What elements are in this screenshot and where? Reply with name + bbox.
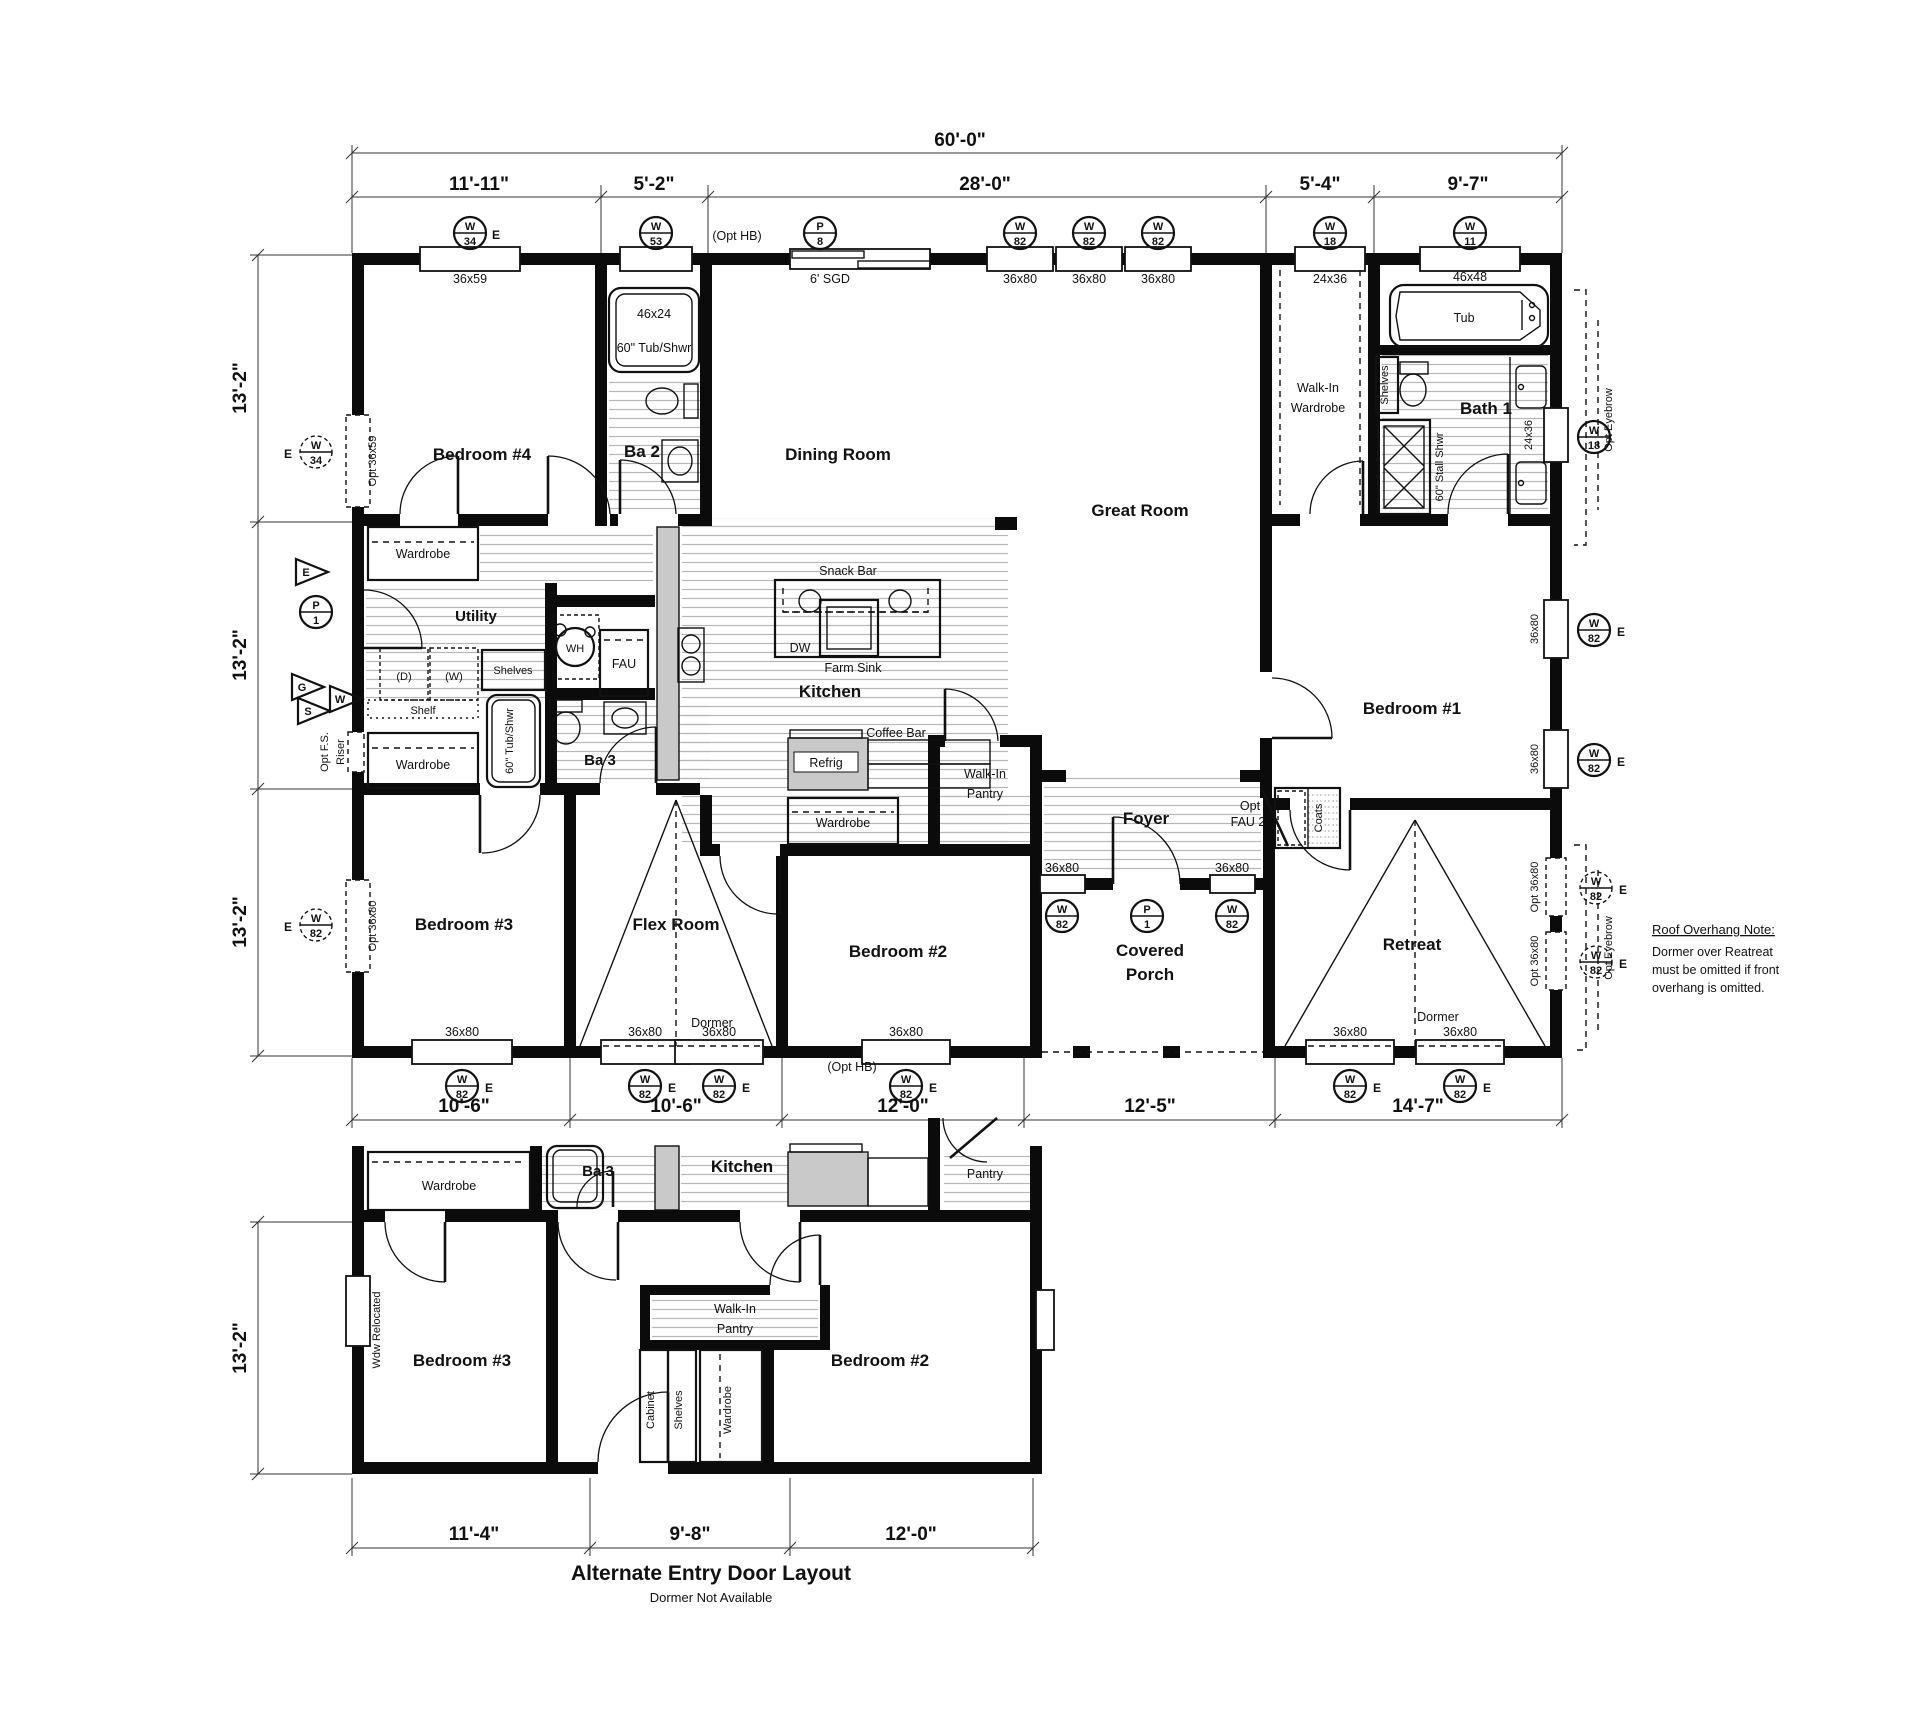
svg-text:W: W xyxy=(1589,425,1600,437)
label-farm-sink: Farm Sink xyxy=(825,661,883,675)
label-opt-hb-bottom: (Opt HB) xyxy=(827,1060,876,1074)
tag-w82-porch1: W82 xyxy=(1046,900,1078,932)
svg-text:E: E xyxy=(1617,625,1625,639)
label-walkin-pantry-2: Pantry xyxy=(967,787,1004,801)
label-washer: (W) xyxy=(445,671,463,683)
tag-p8: P8 xyxy=(804,217,836,249)
label-opt-fau2-2: FAU 2 xyxy=(1231,815,1266,829)
size-flex-w1: 36x80 xyxy=(628,1025,662,1039)
room-label-ba2: Ba 2 xyxy=(624,442,660,461)
size-gr-w3: 36x80 xyxy=(1141,272,1175,286)
room-label-bedroom3: Bedroom #3 xyxy=(415,915,513,934)
label-opt-hb-top: (Opt HB) xyxy=(712,229,761,243)
room-label-bedroom1: Bedroom #1 xyxy=(1363,699,1461,718)
svg-text:P: P xyxy=(1143,904,1150,916)
size-bd1-w2: 36x80 xyxy=(1529,744,1541,774)
svg-text:82: 82 xyxy=(1152,236,1164,248)
tag-w82-opt-left: W82 E xyxy=(284,909,332,941)
svg-text:E: E xyxy=(668,1081,676,1095)
dim-overall: 60'-0" xyxy=(934,130,986,151)
svg-text:E: E xyxy=(1483,1081,1491,1095)
label-opt-eyebrow-top: Opt Eyebrow xyxy=(1603,388,1615,452)
svg-text:E: E xyxy=(1619,957,1627,971)
svg-text:P: P xyxy=(816,221,823,233)
note-title: Roof Overhang Note: xyxy=(1652,922,1775,937)
svg-text:82: 82 xyxy=(1226,919,1238,931)
svg-text:82: 82 xyxy=(713,1089,725,1101)
svg-text:W: W xyxy=(1465,221,1476,233)
label-dryer: (D) xyxy=(396,671,411,683)
alt-label-pantry: Pantry xyxy=(967,1167,1004,1181)
svg-text:E: E xyxy=(284,920,292,934)
svg-text:W: W xyxy=(1589,618,1600,630)
svg-text:1: 1 xyxy=(313,615,319,627)
gas-triangle: G xyxy=(292,674,324,700)
label-shelves-bath1: Shelves xyxy=(1379,365,1391,405)
label-walkin-pantry-1: Walk-In xyxy=(964,767,1006,781)
label-tub-bath1: Tub xyxy=(1453,311,1474,325)
dim-left-1: 13'-2" xyxy=(230,629,251,681)
tag-w82-bd1a: W82 E xyxy=(1578,614,1625,646)
svg-text:1: 1 xyxy=(1144,919,1150,931)
svg-text:82: 82 xyxy=(1014,236,1026,248)
label-snack-bar: Snack Bar xyxy=(819,564,877,578)
floor-plan-page: 60'-0" 11'-11" 5'-2" 28'-0" 5'-4" 9'-7" … xyxy=(0,0,1920,1716)
label-shelf: Shelf xyxy=(410,705,436,717)
label-coffee-bar: Coffee Bar xyxy=(866,726,926,740)
tag-w82-flex2: W82 E xyxy=(703,1070,750,1102)
svg-text:E: E xyxy=(492,228,500,242)
room-label-bath1: Bath 1 xyxy=(1460,399,1512,418)
svg-text:G: G xyxy=(298,682,307,694)
label-wardrobe-utility-top: Wardrobe xyxy=(396,547,450,561)
label-opt-eyebrow-bottom: Opt Eyebrow xyxy=(1603,916,1615,980)
room-label-walkin-wardrobe-1: Walk-In xyxy=(1297,381,1339,395)
dim-left-0: 13'-2" xyxy=(230,362,251,414)
svg-text:W: W xyxy=(1591,950,1602,962)
tag-w11: W11 xyxy=(1454,217,1486,249)
svg-text:34: 34 xyxy=(464,236,477,248)
size-opt-bd4: Opt 36x59 xyxy=(367,436,379,487)
dim-top-2: 28'-0" xyxy=(959,174,1011,195)
svg-text:S: S xyxy=(304,706,311,718)
tag-w82-ret1: W82 E xyxy=(1334,1070,1381,1102)
room-label-bedroom2: Bedroom #2 xyxy=(849,942,947,961)
alt-label-wdw-relocated: Wdw Relocated xyxy=(371,1291,383,1368)
tag-w82-bd1b: W82 E xyxy=(1578,744,1625,776)
svg-text:82: 82 xyxy=(1344,1089,1356,1101)
svg-text:W: W xyxy=(311,440,322,452)
label-tub-size-ba2: 46x24 xyxy=(637,307,671,321)
sewer-triangle: S xyxy=(298,698,330,724)
svg-text:W: W xyxy=(335,694,346,706)
svg-text:82: 82 xyxy=(1588,633,1600,645)
size-bd3-window: 36x80 xyxy=(445,1025,479,1039)
size-bd2-window: 36x80 xyxy=(889,1025,923,1039)
svg-text:W: W xyxy=(1057,904,1068,916)
svg-text:82: 82 xyxy=(1590,965,1602,977)
svg-text:E: E xyxy=(1619,883,1627,897)
tag-w82-gr1: W82 xyxy=(1004,217,1036,249)
room-label-covered: Covered xyxy=(1116,941,1184,960)
room-label-flex: Flex Room xyxy=(633,915,720,934)
size-ret-opt2: Opt 36x80 xyxy=(1529,936,1541,987)
label-fau: FAU xyxy=(612,657,636,671)
svg-text:18: 18 xyxy=(1588,440,1600,452)
tag-w53: W53 xyxy=(640,217,672,249)
size-ret-w1: 36x80 xyxy=(1333,1025,1367,1039)
alt-subtitle: Dormer Not Available xyxy=(650,1590,773,1605)
svg-text:8: 8 xyxy=(817,236,823,248)
size-bd1-w1: 36x80 xyxy=(1529,614,1541,644)
size-bd4-window: 36x59 xyxy=(453,272,487,286)
svg-text:W: W xyxy=(1227,904,1238,916)
label-shelves-utility: Shelves xyxy=(493,665,533,677)
room-label-foyer: Foyer xyxy=(1123,809,1170,828)
label-tub-shwr-ba2: 60" Tub/Shwr xyxy=(617,341,692,355)
room-label-ba3: Ba 3 xyxy=(584,752,616,769)
tag-w82-gr3: W82 xyxy=(1142,217,1174,249)
label-dormer-retreat: Dormer xyxy=(1417,1010,1459,1024)
label-dw: DW xyxy=(790,641,811,655)
label-wardrobe-utility-bottom: Wardrobe xyxy=(396,758,450,772)
tag-w82-ret2: W82 E xyxy=(1444,1070,1491,1102)
svg-text:E: E xyxy=(1617,755,1625,769)
svg-text:18: 18 xyxy=(1324,236,1336,248)
room-label-dining: Dining Room xyxy=(785,445,891,464)
tag-w82-gr2: W82 xyxy=(1073,217,1105,249)
svg-text:W: W xyxy=(1345,1074,1356,1086)
svg-text:W: W xyxy=(1084,221,1095,233)
room-label-bedroom4: Bedroom #4 xyxy=(433,445,532,464)
tag-w18-top: W18 xyxy=(1314,217,1346,249)
room-label-walkin-wardrobe-2: Wardrobe xyxy=(1291,401,1345,415)
dim-top-0: 11'-11" xyxy=(449,174,509,195)
dim-alt-left: 13'-2" xyxy=(230,1322,251,1374)
svg-text:82: 82 xyxy=(1454,1089,1466,1101)
note-line3: overhang is omitted. xyxy=(1652,981,1765,995)
svg-text:W: W xyxy=(457,1074,468,1086)
room-label-great: Great Room xyxy=(1091,501,1188,520)
alt-label-ba3: Ba 3 xyxy=(582,1163,614,1180)
dim-top-1: 5'-2" xyxy=(634,174,675,195)
svg-text:E: E xyxy=(284,447,292,461)
note-line1: Dormer over Reatreat xyxy=(1652,945,1773,959)
size-sgd: 6' SGD xyxy=(810,272,850,286)
tag-p1-utility: P1 xyxy=(300,596,332,628)
alt-label-shelves: Shelves xyxy=(673,1390,685,1430)
svg-text:82: 82 xyxy=(1588,763,1600,775)
alt-label-wardrobe-vert: Wardrobe xyxy=(722,1386,734,1434)
svg-text:E: E xyxy=(742,1081,750,1095)
size-ret-opt1: Opt 36x80 xyxy=(1529,862,1541,913)
alt-label-bedroom3: Bedroom #3 xyxy=(413,1351,511,1370)
dim-top-3: 5'-4" xyxy=(1300,174,1341,195)
opt-eyebrow-lines xyxy=(1574,290,1598,1050)
room-label-utility: Utility xyxy=(455,608,497,625)
label-stall-shwr: 60" Stall Shwr xyxy=(1434,432,1446,501)
dim-left-2: 13'-2" xyxy=(230,896,251,948)
alt-label-kitchen: Kitchen xyxy=(711,1157,773,1176)
opt-fs-riser-marks xyxy=(348,732,364,772)
dim-top-4: 9'-7" xyxy=(1448,174,1489,195)
tag-w82-opt-r1: W82 E xyxy=(1580,872,1627,904)
label-opt-fau2-1: Opt xyxy=(1240,799,1261,813)
size-porch-w2: 36x80 xyxy=(1215,861,1249,875)
floor-plan-drawing: 60'-0" 11'-11" 5'-2" 28'-0" 5'-4" 9'-7" … xyxy=(0,0,1920,1716)
room-label-porch: Porch xyxy=(1126,965,1174,984)
alt-label-bedroom2: Bedroom #2 xyxy=(831,1351,929,1370)
electric-triangle: E xyxy=(296,559,328,585)
svg-text:82: 82 xyxy=(900,1089,912,1101)
svg-text:W: W xyxy=(1589,748,1600,760)
svg-text:82: 82 xyxy=(310,928,322,940)
svg-text:P: P xyxy=(312,600,319,612)
svg-text:E: E xyxy=(302,567,309,579)
size-gr-w1: 36x80 xyxy=(1003,272,1037,286)
svg-text:E: E xyxy=(485,1081,493,1095)
tag-p1-entry: P1 xyxy=(1131,900,1163,932)
size-porch-w1: 36x80 xyxy=(1045,861,1079,875)
svg-text:E: E xyxy=(1373,1081,1381,1095)
size-bath1-side-window: 24x36 xyxy=(1523,420,1535,450)
size-wwr-window: 24x36 xyxy=(1313,272,1347,286)
size-flex-w2: 36x80 xyxy=(702,1025,736,1039)
alt-label-wardrobe: Wardrobe xyxy=(422,1179,476,1193)
roof-overhang-note: Roof Overhang Note: Dormer over Reatreat… xyxy=(1652,922,1780,995)
alt-label-walkin-pantry-2: Pantry xyxy=(717,1322,754,1336)
room-label-retreat: Retreat xyxy=(1383,935,1442,954)
svg-text:W: W xyxy=(1591,876,1602,888)
svg-text:11: 11 xyxy=(1464,236,1476,248)
svg-text:W: W xyxy=(1455,1074,1466,1086)
label-tub-shwr-ba3: 60" Tub/Shwr xyxy=(504,708,516,774)
tag-w34-opt-left: W34 E xyxy=(284,436,332,468)
alt-title: Alternate Entry Door Layout xyxy=(571,1562,851,1585)
label-opt-fs: Opt F.S. xyxy=(319,732,331,772)
svg-text:W: W xyxy=(1325,221,1336,233)
dim-bottom-3: 12'-5" xyxy=(1124,1096,1176,1117)
label-wh: WH xyxy=(566,643,584,655)
alt-label-cabinet: Cabinet xyxy=(645,1391,657,1429)
size-bath1-tub-window: 46x48 xyxy=(1453,270,1487,284)
svg-text:82: 82 xyxy=(1056,919,1068,931)
size-opt-bd3: Opt 36x80 xyxy=(367,901,379,952)
dim-bottom-4: 14'-7" xyxy=(1392,1096,1444,1117)
dim-alt-2: 12'-0" xyxy=(885,1524,937,1545)
svg-text:82: 82 xyxy=(456,1089,468,1101)
svg-text:W: W xyxy=(311,913,322,925)
svg-text:82: 82 xyxy=(1083,236,1095,248)
tag-w34-top: W 34 E xyxy=(454,217,500,249)
room-label-kitchen: Kitchen xyxy=(799,682,861,701)
tag-w82-porch2: W82 xyxy=(1216,900,1248,932)
note-line2: must be omitted if front xyxy=(1652,963,1780,977)
svg-text:34: 34 xyxy=(310,455,323,467)
dim-bottom-1: 10'-6" xyxy=(650,1096,702,1117)
label-wardrobe-bedroom2: Wardrobe xyxy=(816,816,870,830)
dim-alt-1: 9'-8" xyxy=(670,1524,711,1545)
size-gr-w2: 36x80 xyxy=(1072,272,1106,286)
svg-text:E: E xyxy=(929,1081,937,1095)
svg-text:53: 53 xyxy=(650,236,662,248)
alt-label-walkin-pantry-1: Walk-In xyxy=(714,1302,756,1316)
size-ret-w2: 36x80 xyxy=(1443,1025,1477,1039)
svg-text:W: W xyxy=(714,1074,725,1086)
svg-text:W: W xyxy=(651,221,662,233)
svg-text:W: W xyxy=(1015,221,1026,233)
label-refrig: Refrig xyxy=(809,756,842,770)
label-riser: Riser xyxy=(335,739,347,765)
label-coats: Coats xyxy=(1313,803,1325,832)
dim-alt-0: 11'-4" xyxy=(449,1524,500,1545)
svg-text:82: 82 xyxy=(639,1089,651,1101)
svg-text:W: W xyxy=(640,1074,651,1086)
svg-text:W: W xyxy=(465,221,476,233)
svg-text:W: W xyxy=(1153,221,1164,233)
svg-text:82: 82 xyxy=(1590,891,1602,903)
svg-text:W: W xyxy=(901,1074,912,1086)
